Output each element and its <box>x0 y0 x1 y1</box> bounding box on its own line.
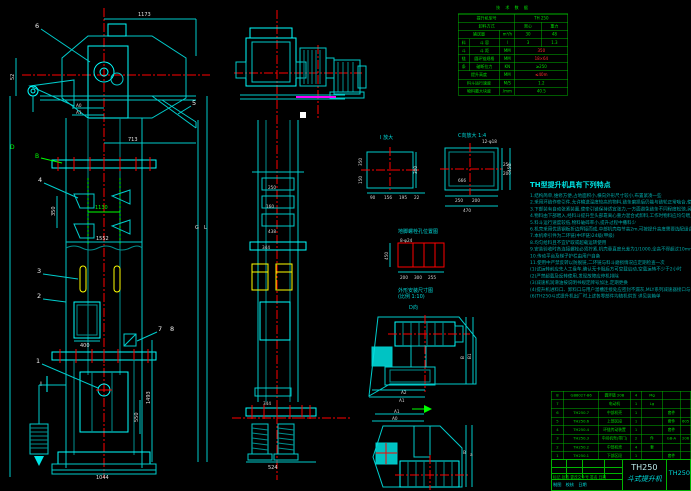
parts-list-table: 8 GB8027-86 圆环链 20B 4 Mg 7 电动机 1 Lg 6 TH… <box>551 391 691 459</box>
note-line: 4.物料由下部喂入,经料斗提升至头部靠离心重力混合式卸料,工作时物料应均匀喂入,… <box>530 213 691 220</box>
parts-cell-note <box>681 443 691 451</box>
note-line: (1)试运转前应先人工盘车,确认无卡阻后方可空载启动,空载运转不少于2小时 <box>530 267 691 274</box>
revision-row-labels: 标记 处数 更改文件号 签名 日期 <box>553 474 606 480</box>
table-cell: 破断拉力 <box>469 63 500 71</box>
table-row: 条破断拉力KN≥250 <box>459 63 568 71</box>
dim-c12f: 12-φ18 <box>482 139 497 144</box>
table-row: 斗斗 距MM350 <box>459 46 568 54</box>
parts-row: 8 GB8027-86 圆环链 20B 4 Mg <box>552 392 691 401</box>
note-line: 10.传动平台及梯子护栏由用户自备 <box>530 253 691 260</box>
part-label-7: 7 <box>158 325 162 333</box>
table-cell: 料 <box>459 39 470 47</box>
detail-I-title: I 放大 <box>380 134 393 141</box>
table-cell: 斗 容 <box>469 39 500 47</box>
model-number: TH250 <box>623 463 666 472</box>
parts-cell-qty: 2 <box>631 435 642 443</box>
parts-cell-no: 1 <box>552 452 565 459</box>
table-cell: 物料最大块度 <box>459 87 500 95</box>
note-line: 8.均匀给料且不宜铲取或超载运转使用 <box>530 240 691 247</box>
table-row: 输送量m³/h3048 <box>459 30 568 38</box>
parts-row: 6 TH250.7 中部机壳 1 套件 <box>552 409 691 418</box>
tech-data-table: 技 术 数 据 提升机型号TH 250卸料方式离心重力输送量m³/h3048料斗… <box>458 5 568 100</box>
parts-cell-note: 605 <box>681 417 691 425</box>
table-cell: 18×64 <box>515 55 567 63</box>
parts-cell-weight: 套件 <box>663 452 681 459</box>
parts-cell-no: 7 <box>552 400 565 408</box>
parts-cell-name: 下部区段 <box>599 452 631 459</box>
dim-s438: 438 <box>268 229 276 234</box>
parts-cell-note <box>681 452 691 459</box>
note-line: 6.机壳采用优质钢板折边焊接而成,中部机壳每节高2m,可按提升高度需要选配组合 <box>530 227 691 234</box>
parts-row: 5 TH250.6 上部区段 1 套件 605 <box>552 417 691 426</box>
table-cell: l <box>500 39 515 47</box>
table-cell: 3 <box>515 39 541 47</box>
head-plan-view: A2 A1 B B1 <box>369 315 476 403</box>
parts-row: 4 TH250.4 环链传动装置 1 套件 <box>552 426 691 435</box>
note-line: 1.结构简单,维修方便,占地面积小,横向外形尺寸较小,布置紧凑一些 <box>530 193 691 200</box>
dim-pA1: A1 <box>399 398 405 403</box>
parts-cell-material: 件 <box>642 435 663 443</box>
detail-view-I: I 放大 300 350 150 90 156 195 22 <box>358 134 425 200</box>
head-plan-view-2: A1 A0 B a <box>372 409 473 490</box>
table-cell: 48 <box>541 31 567 39</box>
parts-cell-code: TH250.3 <box>564 435 599 443</box>
note-line: (3)减速机润滑油按说明书规定牌号加注,定期更换 <box>530 280 691 287</box>
table-cell: 350 <box>515 47 567 55</box>
part-label-5: 5 <box>192 99 196 107</box>
note-line: 2.采用环链作牵引件,允许输送温度较高的物料,链条磨损后仍能与链轮正常啮合,使用… <box>530 200 691 207</box>
drawing-number-cell: TH250 <box>667 460 690 490</box>
parts-cell-material: Mg <box>642 392 663 400</box>
parts-cell-name: 圆环链 20B <box>599 392 631 400</box>
dim-i156: 156 <box>384 195 392 200</box>
dim-g200: 200 <box>400 275 408 280</box>
dim-1130: 1130 <box>95 205 108 211</box>
title-block-name-cell: TH250 斗式提升机 <box>623 460 667 490</box>
part-label-6: 6 <box>35 22 39 30</box>
parts-cell-qty: 4 <box>631 443 642 451</box>
dim-550: 550 <box>134 412 140 422</box>
table-cell: TH 250 <box>515 15 567 23</box>
parts-cell-qty: 4 <box>631 392 642 400</box>
table-cell: /mm <box>500 87 515 95</box>
part-label-2: 2 <box>37 292 41 300</box>
table-row: 提升高度MM≤40m <box>459 71 568 79</box>
table-row: 链圆环链规格MM18×64 <box>459 54 568 62</box>
cad-canvas: 1173 52 6 5 A0 A1 <box>0 0 691 491</box>
dim-i150: 150 <box>358 176 363 184</box>
parts-cell-code: GB8027-86 <box>564 392 599 400</box>
table-cell: 提升高度 <box>459 71 500 79</box>
part-label-8: 8 <box>170 325 174 333</box>
parts-row: 3 TH250.3 中间机壳(带门) 2 件 GB-A 206 <box>552 435 691 444</box>
parts-cell-no: 3 <box>552 435 565 443</box>
table-row: 料斗 容l31.3 <box>459 38 568 46</box>
table-cell: MM <box>500 55 515 63</box>
dim-g300: 300 <box>414 275 422 280</box>
dim-713: 713 <box>128 137 138 143</box>
dim-1552: 1552 <box>96 236 109 242</box>
title-block: 标记 处数 更改文件号 签名 日期 制图 校核 日期 TH250 斗式提升机 T… <box>551 459 691 491</box>
parts-cell-note <box>681 426 691 434</box>
parts-cell-no: 4 <box>552 426 565 434</box>
parts-cell-no: 5 <box>552 417 565 425</box>
table-cell: 1.2 <box>515 79 567 87</box>
dim-s250: 250 <box>268 185 276 190</box>
parts-cell-name: 上部区段 <box>599 417 631 425</box>
table-cell: 斗 距 <box>469 47 500 55</box>
table-cell: 链 <box>459 55 470 63</box>
dim-c450: 450 <box>507 164 512 172</box>
note-line: 11.使用中严禁反转以防脱链,二环链与料斗磨损情况应定期检查一次 <box>530 260 691 267</box>
parts-cell-material <box>642 417 663 425</box>
parts-cell-code: TH250.7 <box>564 409 599 417</box>
parts-cell-weight: 套件 <box>663 417 681 425</box>
parts-cell-code: TH250.6 <box>564 417 599 425</box>
signature-row-labels: 制图 校核 日期 <box>553 481 587 487</box>
parts-cell-material <box>642 452 663 459</box>
parts-cell-note <box>681 392 691 400</box>
parts-cell-material: Lg <box>642 400 663 408</box>
grip-dot <box>300 112 306 118</box>
table-cell: 离心 <box>515 23 541 31</box>
table-cell: KN <box>500 63 515 71</box>
table-cell: 卸料方式 <box>459 23 516 31</box>
dim-1044: 1044 <box>96 475 109 481</box>
motor-block <box>372 347 392 366</box>
table-cell: 提升机型号 <box>459 15 516 23</box>
parts-cell-no: 8 <box>552 392 565 400</box>
dim-i90: 90 <box>370 195 376 200</box>
dim-400: 400 <box>80 343 90 349</box>
table-cell: MM <box>500 71 515 79</box>
dim-G: G <box>195 225 199 231</box>
parts-cell-name: 环链传动装置 <box>599 426 631 434</box>
anchor-bolt-layout: 地脚螺栓孔位置图 8-φ24 450 200 300 255 外形安装尺寸图 (… <box>384 228 444 311</box>
parts-row: 7 电动机 1 Lg <box>552 400 691 409</box>
dim-s524: 524 <box>268 465 278 471</box>
dim-i22: 22 <box>414 195 420 200</box>
table-row: 物料最大块度/mm40.5 <box>459 87 568 95</box>
dim-a0: A0 <box>76 103 82 108</box>
parts-cell-weight <box>663 400 681 408</box>
product-name: 斗式提升机 <box>623 474 666 484</box>
table-cell: ≤40m <box>515 71 567 79</box>
dim-a1: A1 <box>76 110 82 115</box>
weight-arrow-icon <box>34 456 44 466</box>
note-line: (4)提升机进料口、卸料口与用户溜槽连接处应密封不漏灰,MLY系列减速器接口与电… <box>530 287 691 294</box>
parts-cell-name: 电动机 <box>599 400 631 408</box>
dim-qB: B <box>463 450 466 455</box>
dim-i195: 195 <box>399 195 407 200</box>
parts-cell-material: 套 <box>642 443 663 451</box>
view-label-D: D <box>10 144 15 151</box>
part-label-1: 1 <box>36 357 40 365</box>
side-view: 250 160 438 344 344 <box>232 10 366 480</box>
parts-cell-name: 中间机壳(带门) <box>599 435 631 443</box>
dim-s344a: 344 <box>262 245 270 250</box>
view-label-B: B <box>35 153 39 160</box>
table-cell: 圆环链规格 <box>469 55 500 63</box>
parts-cell-no: 6 <box>552 409 565 417</box>
feature-notes-title: TH型提升机具有下列特点 <box>530 180 691 190</box>
detail-C-title: C向放大 1:4 <box>458 132 486 139</box>
table-cell: 30 <box>515 31 541 39</box>
table-cell: 条 <box>459 63 470 71</box>
parts-cell-name: 中部机壳 <box>599 443 631 451</box>
table-row: 提升机型号TH 250 <box>459 14 568 22</box>
note-line: 9.安装验收时各连接螺栓必须拧紧,机壳垂直度允差为1/1000,全高不得超过10… <box>530 247 691 254</box>
parts-cell-no: 2 <box>552 443 565 451</box>
dim-52: 52 <box>10 74 16 80</box>
dim-g450: 450 <box>384 252 389 260</box>
parts-cell-qty: 1 <box>631 409 642 417</box>
dim-1493: 1493 <box>146 391 152 404</box>
parts-cell-qty: 1 <box>631 417 642 425</box>
parts-cell-material <box>642 426 663 434</box>
dim-i300: 300 <box>413 166 418 174</box>
table-cell: M/S <box>500 79 515 87</box>
feature-notes: TH型提升机具有下列特点 1.结构简单,维修方便,占地面积小,横向外形尺寸较小,… <box>530 180 691 392</box>
dim-qA0: A0 <box>392 416 398 421</box>
feature-notes-body: 1.结构简单,维修方便,占地面积小,横向外形尺寸较小,布置紧凑一些2.采用环链作… <box>530 193 691 300</box>
table-cell: 斗 <box>459 47 470 55</box>
dim-c250a: 250 <box>455 198 463 203</box>
dim-c666: 666 <box>458 178 466 183</box>
dim-L: L <box>204 225 207 231</box>
note-line: (6)TH250斗式提升机出厂时上述各零部件均随机供货 详见装箱单 <box>530 294 691 301</box>
parts-cell-weight <box>663 443 681 451</box>
dim-s160: 160 <box>266 204 274 209</box>
parts-row: 2 TH250.2 中部机壳 4 套 <box>552 443 691 452</box>
parts-cell-code: TH250.1 <box>564 452 599 459</box>
dim-g8f: 8-φ24 <box>400 238 413 243</box>
table-cell: m³/h <box>500 31 515 39</box>
note-line: 5.料斗运行速度较低,物料破碎率小,提升过程中撒料少 <box>530 220 691 227</box>
table-cell: 1.3 <box>541 39 567 47</box>
dim-pB: B <box>460 356 465 359</box>
title-block-revision-grid: 标记 处数 更改文件号 签名 日期 制图 校核 日期 <box>552 460 623 490</box>
tech-table-grid: 提升机型号TH 250卸料方式离心重力输送量m³/h3048料斗 容l31.3斗… <box>458 14 568 96</box>
table-cell: 料斗运行速度 <box>459 79 500 87</box>
view-direction-arrow-icon <box>412 405 432 413</box>
parts-cell-qty: 1 <box>631 400 642 408</box>
parts-cell-weight: 套件 <box>663 426 681 434</box>
parts-list-grid: 8 GB8027-86 圆环链 20B 4 Mg 7 电动机 1 Lg 6 TH… <box>551 391 691 459</box>
parts-cell-qty: 1 <box>631 452 642 459</box>
parts-cell-name: 中部机壳 <box>599 409 631 417</box>
front-view: 1173 52 6 5 A0 A1 <box>10 8 210 481</box>
table-row: 卸料方式离心重力 <box>459 22 568 30</box>
parts-cell-note <box>681 400 691 408</box>
dim-350: 350 <box>51 206 57 216</box>
note-line: (2)严禁超载及反转使用,发现故障应停机排除 <box>530 273 691 280</box>
dim-1173: 1173 <box>138 12 151 18</box>
dim-qA1: A1 <box>394 409 400 414</box>
section-label-I: I <box>40 380 42 388</box>
parts-cell-code: TH250.4 <box>564 426 599 434</box>
bolt-layout-title: 地脚螺栓孔位置图 <box>398 228 438 235</box>
dim-c200a: 200 <box>472 198 480 203</box>
dim-pA2: A2 <box>401 390 407 395</box>
part-label-4: 4 <box>38 176 42 184</box>
parts-cell-weight: 套件 <box>663 409 681 417</box>
dim-i350: 350 <box>358 158 363 166</box>
parts-cell-qty: 1 <box>631 426 642 434</box>
dim-qa: a <box>470 452 473 457</box>
note-line: 7.本机牵引件为二环链(中环链)24级(甲级) <box>530 233 691 240</box>
parts-cell-note <box>681 409 691 417</box>
parts-cell-code <box>564 400 599 408</box>
table-cell: MM <box>500 47 515 55</box>
tech-table-title: 技 术 数 据 <box>458 5 568 14</box>
table-row: 料斗运行速度M/S1.2 <box>459 79 568 87</box>
outline-caption-2: (比例 1:10) <box>398 293 425 300</box>
parts-cell-material <box>642 409 663 417</box>
parts-cell-note: 206 <box>681 435 691 443</box>
parts-cell-weight <box>663 392 681 400</box>
parts-cell-code: TH250.2 <box>564 443 599 451</box>
table-cell: 重力 <box>541 23 567 31</box>
parts-cell-weight: GB-A <box>663 435 681 443</box>
outline-caption-1: 外形安装尺寸图 <box>398 287 433 294</box>
table-cell: ≥250 <box>515 63 567 71</box>
view-D-label: D向 <box>409 304 418 311</box>
table-cell: 40.5 <box>515 87 567 95</box>
dim-g255: 255 <box>428 275 436 280</box>
part-label-3: 3 <box>37 267 41 275</box>
dim-pB1: B1 <box>467 353 472 359</box>
parts-row: 1 TH250.1 下部区段 1 套件 <box>552 452 691 459</box>
dim-c470: 470 <box>463 208 471 213</box>
note-line: 3.下部装有自动张紧装置,使牵引链保持适宜张力,一方面避免链条不同程度松弛,另一… <box>530 206 691 213</box>
table-cell: 输送量 <box>459 31 500 39</box>
detail-view-C: C向放大 1:4 12-φ18 666 250 200 470 250 200 … <box>440 132 512 213</box>
